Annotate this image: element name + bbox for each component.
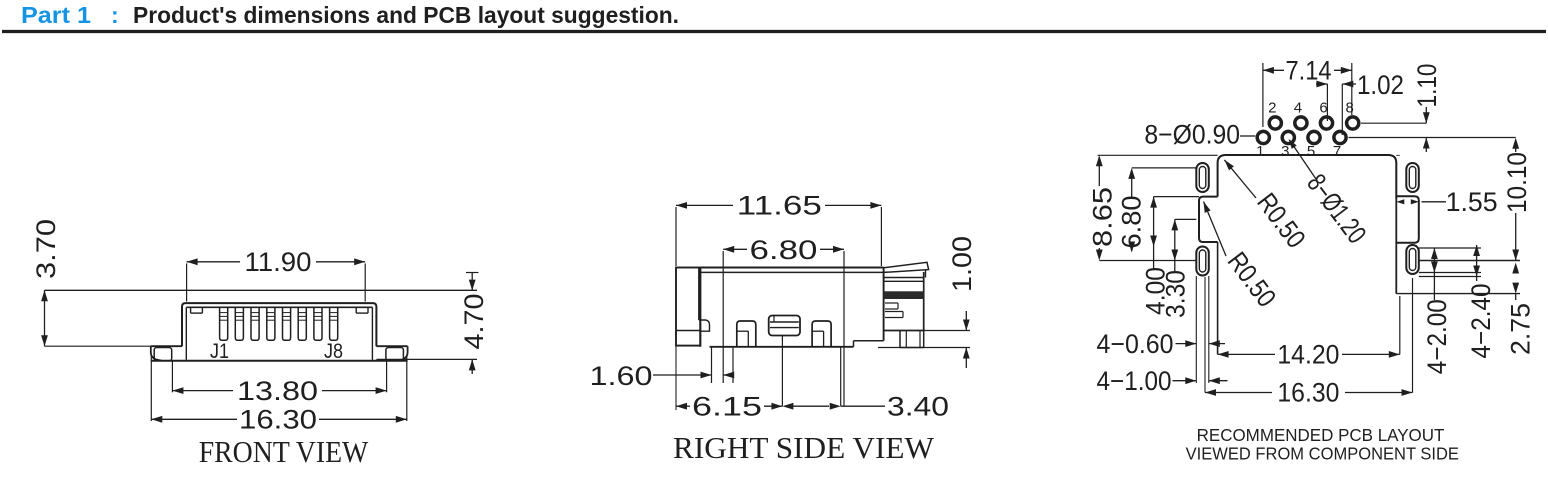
svg-text:J8: J8 — [324, 340, 343, 363]
svg-text:3.30: 3.30 — [1161, 270, 1191, 318]
svg-text:2: 2 — [1268, 100, 1276, 117]
svg-text:10.10: 10.10 — [1502, 152, 1532, 213]
svg-text:6: 6 — [1319, 100, 1327, 117]
svg-text:1.00: 1.00 — [947, 236, 977, 292]
svg-text:6.80: 6.80 — [1117, 196, 1147, 249]
svg-text:14.20: 14.20 — [1277, 339, 1339, 369]
svg-text:Product's dimensions and PCB l: Product's dimensions and PCB layout sugg… — [133, 2, 679, 28]
svg-text:Part 1: Part 1 — [21, 2, 91, 28]
svg-text:6.15: 6.15 — [692, 392, 762, 422]
svg-text:11.90: 11.90 — [245, 247, 312, 277]
svg-text:1.10: 1.10 — [1412, 64, 1442, 108]
svg-text:16.30: 16.30 — [1277, 378, 1339, 408]
svg-text:3: 3 — [1281, 143, 1289, 160]
svg-text:6.80: 6.80 — [750, 235, 818, 265]
svg-text:1.55: 1.55 — [1446, 187, 1498, 217]
svg-text:1.02: 1.02 — [1357, 70, 1404, 100]
svg-text:11.65: 11.65 — [737, 191, 822, 221]
svg-text:3.70: 3.70 — [31, 219, 61, 279]
svg-text:4−1.00: 4−1.00 — [1097, 366, 1172, 396]
svg-text:J1: J1 — [210, 340, 229, 363]
svg-text:2.75: 2.75 — [1506, 303, 1536, 355]
svg-text:RIGHT SIDE VIEW: RIGHT SIDE VIEW — [673, 430, 935, 465]
svg-text:1.60: 1.60 — [590, 361, 653, 391]
svg-text:3.40: 3.40 — [887, 392, 949, 422]
svg-text:5: 5 — [1307, 143, 1315, 160]
svg-text:RECOMMENDED PCB LAYOUT: RECOMMENDED PCB LAYOUT — [1197, 425, 1445, 445]
svg-text:8−Ø0.90: 8−Ø0.90 — [1144, 120, 1240, 150]
svg-text:13.80: 13.80 — [237, 376, 318, 406]
svg-text:16.30: 16.30 — [239, 405, 317, 435]
svg-text:4−0.60: 4−0.60 — [1097, 329, 1174, 359]
svg-text:7.14: 7.14 — [1286, 55, 1332, 85]
svg-text:7: 7 — [1333, 143, 1341, 160]
svg-text:8.65: 8.65 — [1088, 187, 1118, 247]
svg-text:4−2.00: 4−2.00 — [1422, 299, 1452, 374]
svg-text::: : — [111, 2, 119, 28]
svg-text:1: 1 — [1256, 143, 1264, 160]
svg-text:4: 4 — [1294, 100, 1302, 117]
svg-text:4−2.40: 4−2.40 — [1466, 284, 1496, 359]
svg-text:FRONT VIEW: FRONT VIEW — [199, 434, 369, 469]
svg-text:8: 8 — [1346, 100, 1354, 117]
svg-text:VIEWED FROM COMPONENT SIDE: VIEWED FROM COMPONENT SIDE — [1186, 444, 1459, 464]
svg-text:4.70: 4.70 — [459, 294, 489, 350]
